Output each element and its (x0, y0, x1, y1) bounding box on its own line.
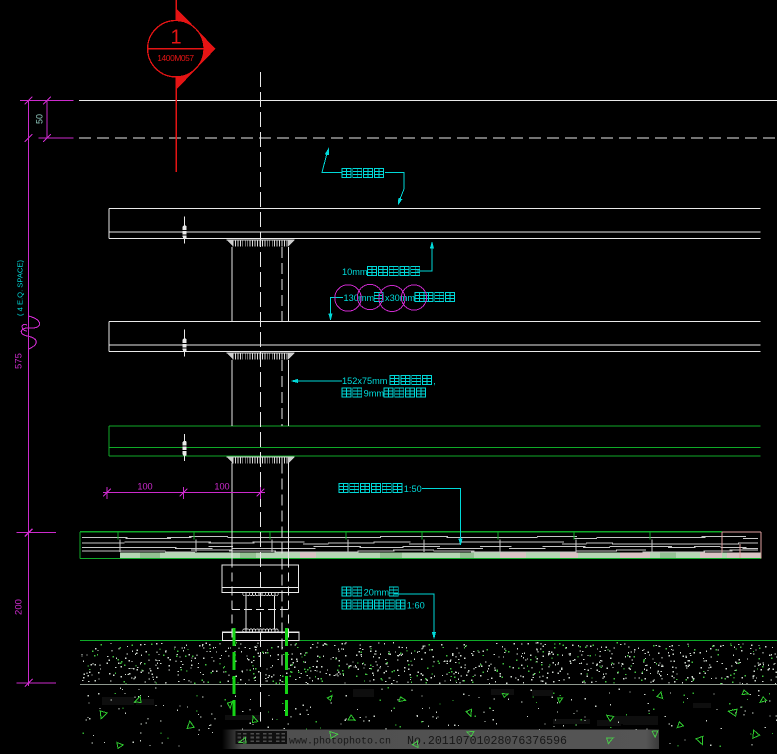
svg-text:130mm: 130mm (344, 293, 375, 303)
svg-text:200: 200 (14, 599, 25, 615)
svg-text:1:60: 1:60 (407, 600, 425, 610)
svg-text:152x75mm: 152x75mm (342, 376, 388, 386)
svg-text:( 4 E.Q. SPACE): ( 4 E.Q. SPACE) (16, 260, 25, 316)
svg-text:1: 1 (170, 27, 181, 49)
svg-text:10mm: 10mm (342, 267, 368, 277)
svg-text:,: , (433, 376, 436, 386)
svg-text:20mm: 20mm (364, 587, 390, 597)
svg-text:100: 100 (214, 482, 229, 492)
svg-text:www.photophoto.cn: www.photophoto.cn (289, 736, 391, 748)
svg-text:No.20110701028076376596: No.20110701028076376596 (407, 735, 567, 748)
svg-text:9mm: 9mm (364, 388, 385, 398)
svg-text:50: 50 (35, 114, 45, 124)
svg-text:1400M057: 1400M057 (157, 53, 194, 63)
svg-text:x30mm: x30mm (385, 293, 415, 303)
svg-text:575: 575 (14, 353, 25, 369)
svg-text:1:50: 1:50 (404, 484, 422, 494)
svg-text:100: 100 (137, 482, 152, 492)
